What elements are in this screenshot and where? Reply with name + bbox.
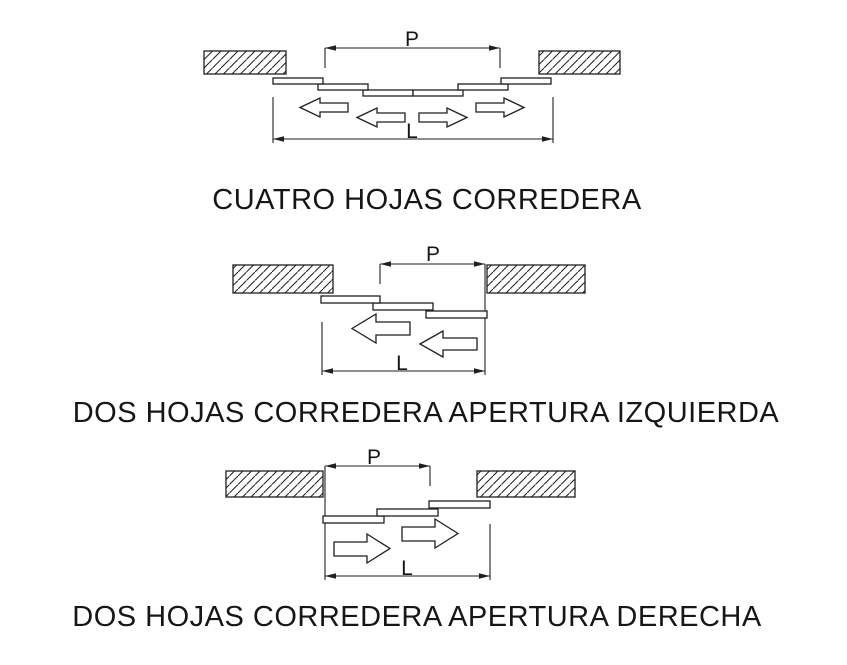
door-leaf — [501, 78, 551, 84]
wall-hatch-right — [487, 265, 585, 293]
diagram-caption: DOS HOJAS CORREDERA APERTURA DERECHA — [72, 601, 762, 633]
diagram-two-leaf-left: P L DOS HOJAS CORREDERA APERTURA IZQUIER… — [73, 243, 780, 429]
dim-arrowhead-left — [325, 463, 336, 469]
l-dimension-label: L — [401, 557, 413, 580]
p-dimension-label: P — [367, 446, 381, 469]
dim-arrowhead-left — [273, 136, 284, 142]
dim-arrowhead-right — [474, 261, 485, 267]
door-leaf — [363, 90, 413, 96]
wall-hatch-left — [233, 265, 333, 293]
diagram-four-leaf-sliding: P L CUATRO HOJAS C — [204, 28, 642, 216]
dimension-p: P — [325, 28, 500, 68]
door-leaf — [273, 78, 323, 84]
dim-arrowhead-left — [325, 45, 336, 51]
dim-arrowhead-right — [479, 573, 490, 579]
dim-arrowhead-left — [322, 368, 333, 374]
dim-arrowhead-left — [325, 573, 336, 579]
slide-direction-arrow-right — [476, 98, 524, 117]
p-dimension-label: P — [405, 28, 419, 51]
l-dimension-label: L — [406, 120, 418, 143]
door-leaf — [373, 303, 433, 310]
dim-arrowhead-right — [474, 368, 485, 374]
wall-hatch-right — [477, 471, 575, 497]
technical-drawing-page: P L CUATRO HOJAS C — [0, 0, 847, 665]
wall-hatch-left — [204, 51, 286, 74]
slide-direction-arrow-left — [300, 98, 348, 117]
p-dimension-label: P — [426, 243, 440, 266]
diagram-caption: DOS HOJAS CORREDERA APERTURA IZQUIERDA — [73, 397, 780, 429]
slide-direction-arrow-right — [402, 519, 458, 548]
door-leaf — [429, 501, 490, 508]
dim-arrowhead-right — [489, 45, 500, 51]
slide-direction-arrow-left — [357, 108, 405, 127]
slide-direction-arrow-left — [352, 314, 410, 343]
door-leaf — [426, 311, 487, 318]
door-leaf — [458, 84, 508, 90]
door-leaf — [323, 516, 384, 523]
l-dimension-label: L — [396, 352, 408, 375]
door-leaf — [318, 84, 368, 90]
dim-arrowhead-left — [380, 261, 391, 267]
sliding-door-diagrams: P L CUATRO HOJAS C — [0, 0, 847, 665]
slide-direction-arrow-left — [420, 331, 477, 357]
dim-arrowhead-right — [419, 463, 430, 469]
wall-hatch-right — [539, 51, 620, 74]
dim-arrowhead-right — [542, 136, 553, 142]
door-leaf — [321, 296, 380, 303]
diagram-two-leaf-right: P L DOS HOJAS CORREDERA APERTURA DERECHA — [72, 446, 762, 633]
slide-direction-arrow-right — [334, 534, 390, 563]
door-leaf — [413, 90, 463, 96]
wall-hatch-left — [226, 471, 323, 497]
slide-direction-arrow-right — [419, 108, 467, 127]
diagram-caption: CUATRO HOJAS CORREDERA — [212, 184, 642, 216]
door-leaf — [377, 509, 438, 516]
